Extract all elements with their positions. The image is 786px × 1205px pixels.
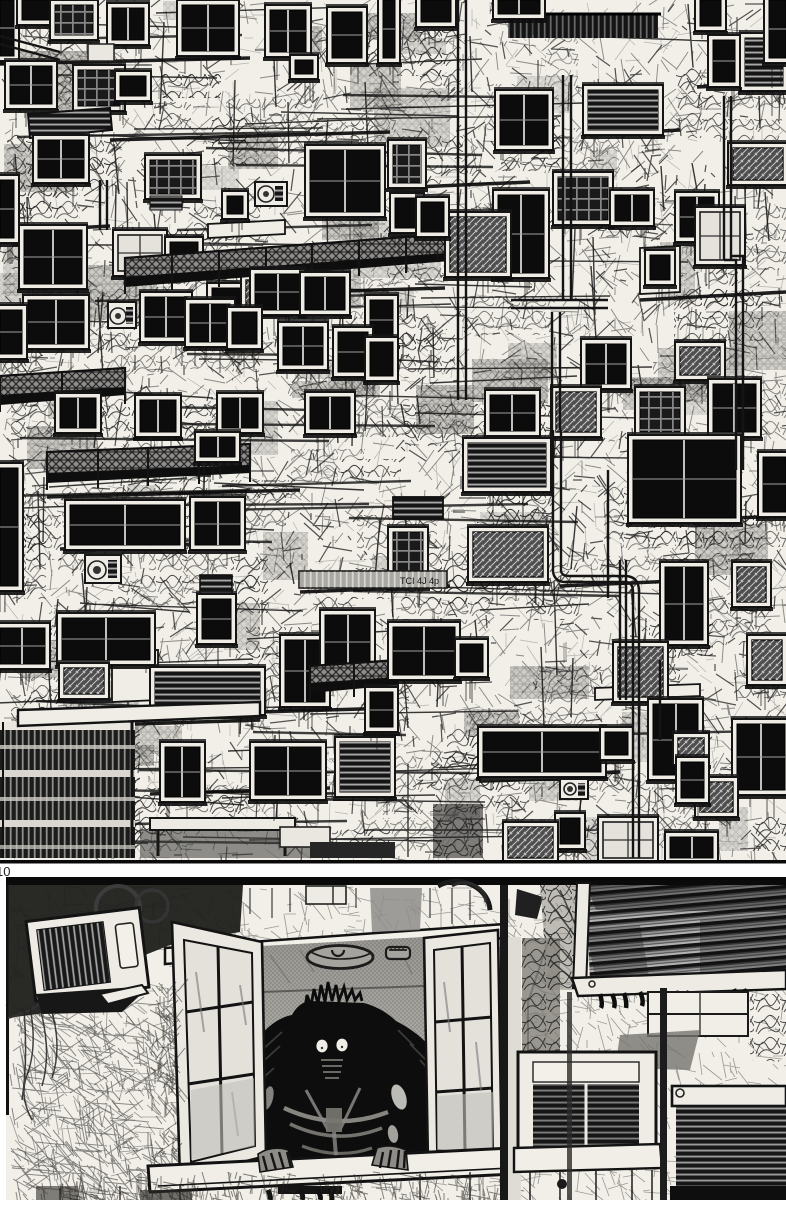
svg-text:TCI 4J 4p: TCI 4J 4p bbox=[400, 576, 439, 586]
svg-text:10: 10 bbox=[0, 864, 10, 879]
